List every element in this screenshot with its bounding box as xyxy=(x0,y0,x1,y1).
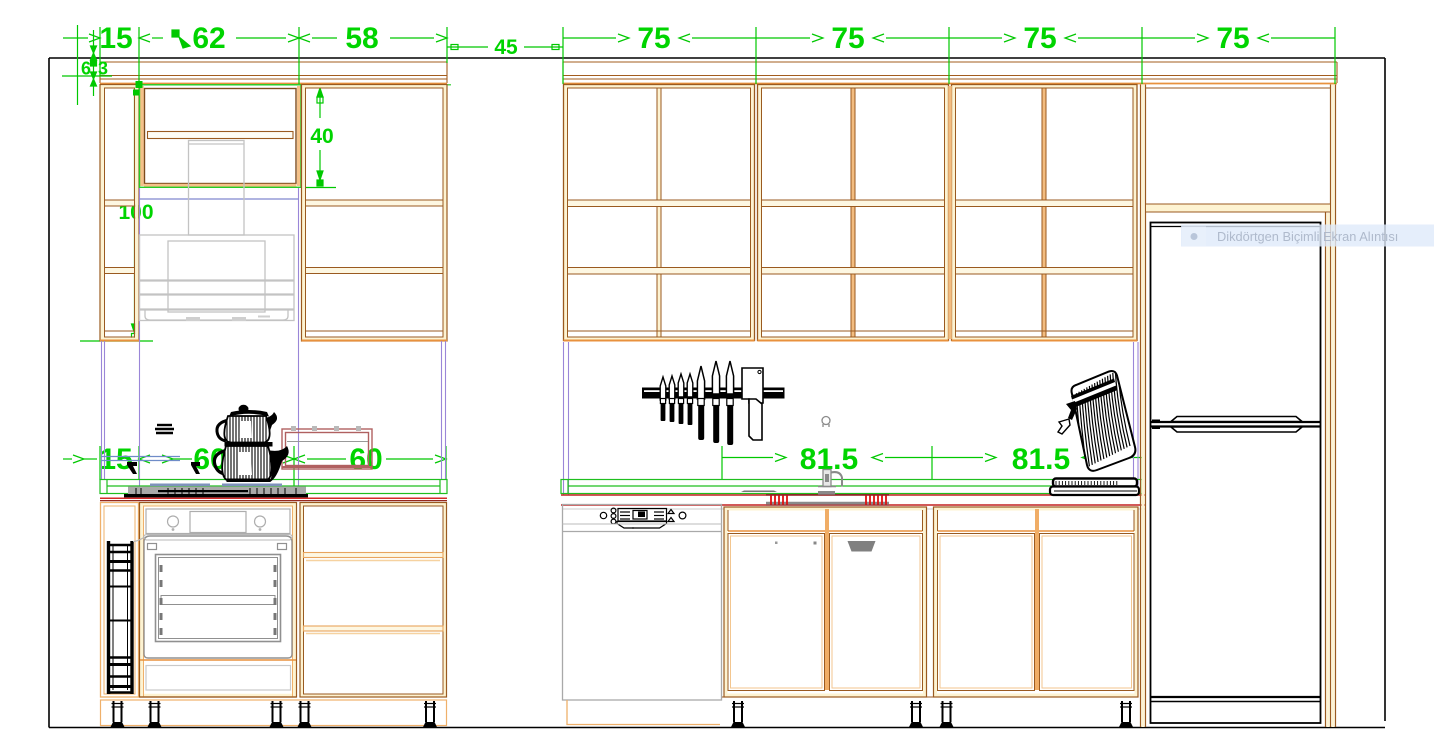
svg-text:81.5: 81.5 xyxy=(1012,443,1070,476)
svg-text:75: 75 xyxy=(1023,22,1056,55)
svg-text:75: 75 xyxy=(1216,22,1249,55)
svg-text:3: 3 xyxy=(98,59,108,79)
svg-text:58: 58 xyxy=(345,22,378,55)
svg-text:45: 45 xyxy=(494,36,518,59)
svg-text:15: 15 xyxy=(99,22,132,55)
svg-text:Dikdörtgen Biçimli Ekran Alınt: Dikdörtgen Biçimli Ekran Alıntısı xyxy=(1217,229,1398,244)
svg-text:60: 60 xyxy=(349,443,382,476)
svg-text:62: 62 xyxy=(192,22,225,55)
svg-text:75: 75 xyxy=(637,22,670,55)
svg-text:40: 40 xyxy=(310,125,333,148)
svg-text:6: 6 xyxy=(81,59,91,79)
svg-text:75: 75 xyxy=(831,22,864,55)
